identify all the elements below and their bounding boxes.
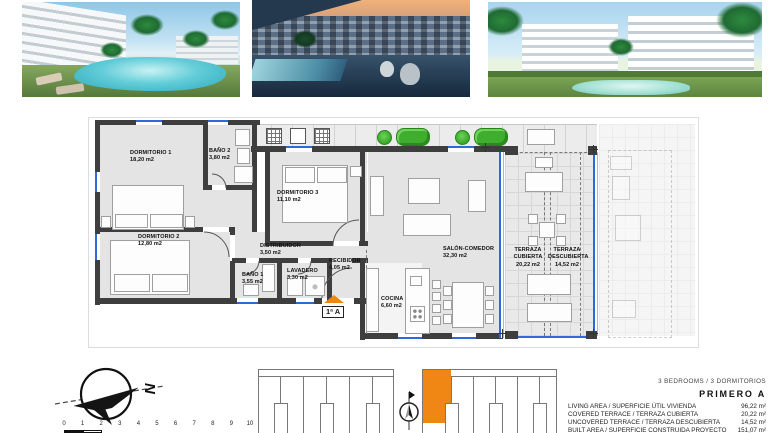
summary-row: UNCOVERED TERRACE / TERRAZA DESCUBIERTA1… xyxy=(568,419,766,427)
keyplan-stair-notch xyxy=(489,403,503,433)
scale-bar-numbers: 012345678910 xyxy=(60,421,254,427)
nightstand xyxy=(185,216,195,228)
coffee-table xyxy=(403,214,451,236)
floorplan-sheet: DORMITORIO 118,20 m2 BAÑO 23,80 m2 DORMI… xyxy=(0,0,770,433)
dining-chair xyxy=(443,314,452,324)
dining-table xyxy=(452,282,484,328)
pillow xyxy=(114,274,150,292)
keyplan-stair-notch xyxy=(366,403,380,433)
stove-icon xyxy=(410,306,425,322)
pillow xyxy=(115,214,148,228)
bedrooms-line: 3 BEDROOMS / 3 DORMITORIOS xyxy=(530,378,766,385)
room-label-dormitorio-3: DORMITORIO 311,10 m2 xyxy=(277,190,318,205)
nightstand xyxy=(101,216,111,228)
room-label-bano-2: BAÑO 23,80 m2 xyxy=(209,148,230,163)
stool xyxy=(432,304,441,313)
svg-text:N: N xyxy=(141,383,158,395)
summary-block: 3 BEDROOMS / 3 DORMITORIOS PRIMERO A LIV… xyxy=(530,378,766,433)
dining-chair xyxy=(443,300,452,310)
salon-sofa xyxy=(408,178,440,204)
dining-chair xyxy=(485,286,494,296)
stool xyxy=(432,292,441,301)
room-label-cocina: COCINA6,60 m2 xyxy=(381,296,403,311)
room-label-distribuidor: DISTRIBUIDOR3,50 m2 xyxy=(260,243,301,258)
keyplan-stair-notch xyxy=(320,403,334,433)
stool xyxy=(432,280,441,289)
bathroom1-fixture xyxy=(262,264,275,292)
unit-tag: 1ª A xyxy=(322,306,344,318)
bathroom2-fixture xyxy=(235,129,250,146)
keyplan-divider xyxy=(517,376,518,433)
salon-sofa-side xyxy=(370,176,384,216)
unit-title: PRIMERO A xyxy=(530,389,766,399)
dining-chair xyxy=(443,286,452,296)
pillow xyxy=(285,167,315,183)
entrance-arrow-icon xyxy=(324,295,344,303)
keyplan-divider xyxy=(349,376,350,433)
kitchen-counter xyxy=(366,268,379,332)
dining-chair xyxy=(485,314,494,324)
room-label-terraza-cubierta: TERRAZACUBIERTA20,22 m2 xyxy=(513,247,543,269)
bathroom2-fixture xyxy=(237,148,250,164)
keyplan-building-left xyxy=(258,369,394,433)
room-label-terraza-descubierta: TERRAZADESCUBIERTA14,52 m2 xyxy=(548,247,586,269)
kitchen-sink xyxy=(410,276,422,286)
room-label-bano-1: BAÑO 13,55 m2 xyxy=(242,272,263,287)
compass-rose-icon: N xyxy=(52,364,167,426)
nightstand xyxy=(350,166,362,177)
room-label-dormitorio-2: DORMITORIO 212,80 m2 xyxy=(138,234,179,249)
summary-row: LIVING AREA / SUPERFICIE ÚTIL VIVIENDA96… xyxy=(568,403,766,411)
dining-chair xyxy=(485,300,494,310)
room-label-lavadero: LAVADERO3,30 m2 xyxy=(287,268,318,283)
bathroom2-shower xyxy=(234,166,253,183)
keyplan-divider xyxy=(473,376,474,433)
keyplan-stair-notch xyxy=(274,403,288,433)
keyplan-divider xyxy=(303,376,304,433)
summary-row: BUILT AREA / SUPERFICIE CONSTRUIDA PROYE… xyxy=(568,427,766,433)
salon-armchair xyxy=(468,180,486,212)
room-label-dormitorio-1: DORMITORIO 118,20 m2 xyxy=(130,150,171,165)
pillow xyxy=(317,167,347,183)
pillow xyxy=(152,274,188,292)
mini-compass-icon xyxy=(398,388,420,433)
room-label-recibidor: RECIBIDOR4,05 m2 xyxy=(329,258,361,273)
pillow xyxy=(150,214,183,228)
summary-row: COVERED TERRACE / TERRAZA CUBIERTA20,22 … xyxy=(568,411,766,419)
stool xyxy=(432,316,441,325)
room-label-salon-comedor: SALÓN-COMEDOR32,30 m2 xyxy=(443,246,494,261)
keyplan-stair-notch xyxy=(445,403,459,433)
